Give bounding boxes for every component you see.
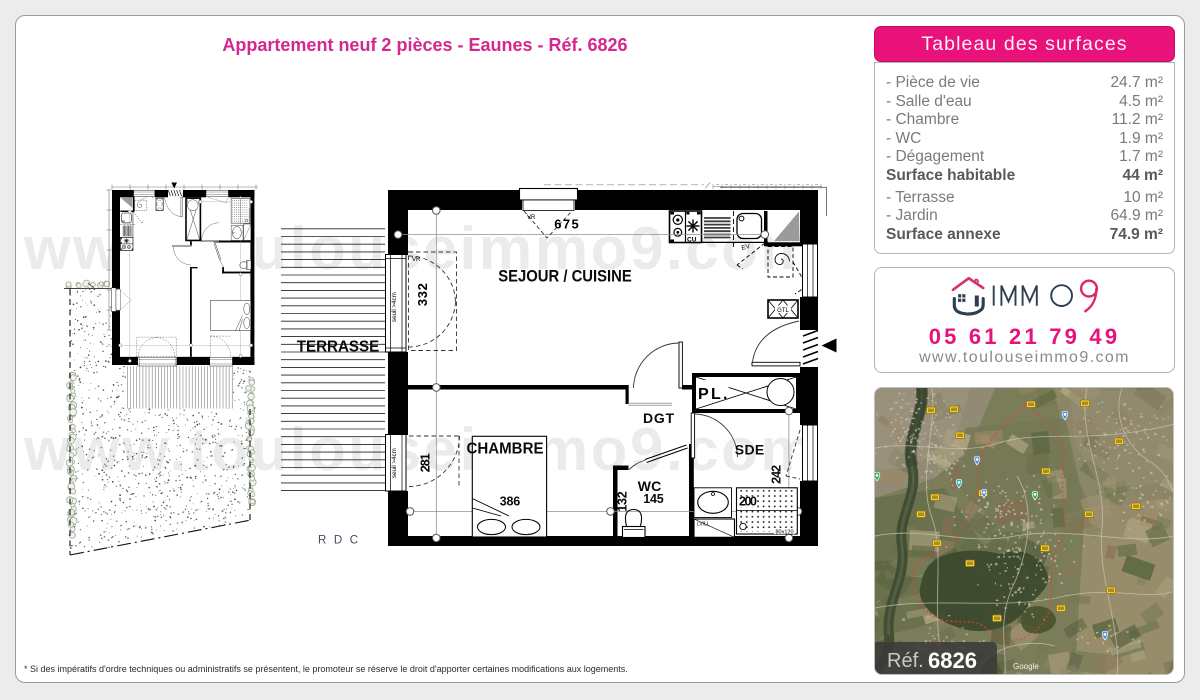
svg-text:DGT: DGT [643, 410, 674, 426]
svg-text:CU: CU [687, 237, 697, 244]
svg-text:332: 332 [415, 283, 430, 306]
svg-text:VR: VR [527, 215, 536, 221]
svg-text:80x120: 80x120 [775, 530, 793, 536]
svg-text:GTL: GTL [777, 308, 789, 314]
svg-text:200: 200 [739, 495, 757, 509]
svg-text:seuil >4cm: seuil >4cm [391, 292, 398, 322]
svg-text:TERRASSE: TERRASSE [297, 339, 380, 356]
svg-text:SDE: SDE [735, 442, 765, 458]
svg-text:386: 386 [500, 495, 521, 509]
svg-text:145: 145 [643, 492, 664, 506]
svg-text:6826: 6826 [928, 648, 977, 673]
svg-text:SEJOUR / CUISINE: SEJOUR / CUISINE [498, 268, 632, 286]
svg-text:Réf.: Réf. [887, 650, 924, 672]
svg-text:Google: Google [1013, 662, 1039, 671]
svg-text:242: 242 [770, 465, 784, 484]
svg-text:VR: VR [412, 257, 421, 263]
svg-text:CHAMBRE: CHAMBRE [467, 441, 544, 458]
svg-text:PL.: PL. [698, 386, 728, 403]
svg-text:281: 281 [419, 453, 433, 472]
svg-text:R D C: R D C [318, 535, 360, 547]
svg-text:675: 675 [554, 217, 579, 232]
svg-text:LV/LL: LV/LL [697, 522, 710, 528]
svg-text:seuil >4cm: seuil >4cm [391, 448, 398, 478]
svg-text:132: 132 [616, 491, 630, 512]
